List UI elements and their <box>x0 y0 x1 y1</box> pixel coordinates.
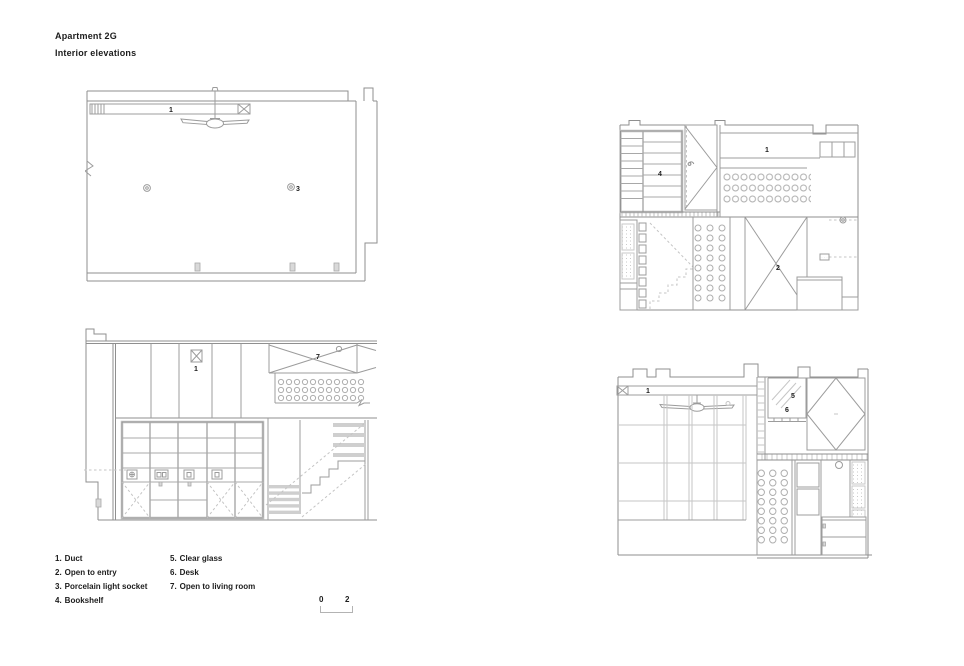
legend-num: 6. <box>170 568 177 577</box>
callout-bookshelf: 4 <box>658 171 662 178</box>
door-knob-icon <box>836 462 843 469</box>
legend-num: 7. <box>170 582 177 591</box>
scale-end: 2 <box>345 595 349 604</box>
perforated-panel <box>756 469 791 544</box>
drawing-sheet: Apartment 2G Interior elevations 1 3 <box>0 0 964 666</box>
legend-column-1: 1.Duct 2.Open to entry 3.Porcelain light… <box>55 552 147 608</box>
floor-outlets <box>195 263 339 271</box>
door-handle-icon <box>688 163 691 166</box>
legend-label: Porcelain light socket <box>65 582 148 591</box>
perforated-panel <box>275 373 370 406</box>
upper-floor-hatch <box>620 212 720 217</box>
ceiling-fan-icon <box>181 88 249 129</box>
legend-num: 4. <box>55 596 62 605</box>
callout-open-to-living-room: 7 <box>316 354 320 361</box>
scale-bracket-icon <box>320 606 353 613</box>
callout-light-socket: 3 <box>296 186 300 193</box>
callout-duct: 1 <box>765 147 769 154</box>
low-cabinet <box>822 517 866 555</box>
elevation-top-right: 4 1 <box>617 117 867 317</box>
room-outline <box>85 88 377 281</box>
duct: 1 <box>617 386 757 395</box>
legend-item-porcelain-light-socket: 3.Porcelain light socket <box>55 580 147 594</box>
duct: 1 <box>90 104 250 114</box>
legend-item-duct: 1.Duct <box>55 552 147 566</box>
desk-and-glass-panel: 5 6 <box>768 378 806 422</box>
page-subtitle: Interior elevations <box>55 48 136 58</box>
floor-band <box>757 454 868 460</box>
lower-right-section <box>756 460 866 555</box>
legend-num: 5. <box>170 554 177 563</box>
legend-label: Bookshelf <box>65 596 104 605</box>
elevation-bottom-right: 1 5 6 <box>616 362 874 564</box>
duct: 1 <box>191 350 202 373</box>
elevation-bottom-left: 1 7 <box>84 322 379 534</box>
legend-num: 1. <box>55 554 62 563</box>
legend-item-bookshelf: 4.Bookshelf <box>55 594 147 608</box>
legend-label: Desk <box>180 568 199 577</box>
legend-column-2: 5.Clear glass 6.Desk 7.Open to living ro… <box>170 552 255 594</box>
legend-label: Open to entry <box>65 568 117 577</box>
closet-door <box>685 125 720 217</box>
callout-duct: 1 <box>646 388 650 395</box>
perforated-panel-lower <box>694 224 730 302</box>
wall-section-ladder <box>757 377 765 460</box>
callout-desk: 6 <box>785 407 789 414</box>
diamond-panel <box>807 378 865 450</box>
callout-open-to-entry: 2 <box>776 265 780 272</box>
callout-duct: 1 <box>169 107 173 114</box>
low-cabinet-right <box>797 277 858 310</box>
legend-num: 3. <box>55 582 62 591</box>
legend-label: Duct <box>65 554 83 563</box>
scale-start: 0 <box>319 595 323 604</box>
callout-duct: 1 <box>194 366 198 373</box>
ceiling-fan-icon <box>660 395 734 411</box>
staircase <box>266 418 368 520</box>
light-socket-and-switch <box>820 217 858 260</box>
legend-item-open-to-entry: 2.Open to entry <box>55 566 147 580</box>
open-to-living-room-panel: 7 <box>269 344 376 374</box>
lower-cabinets-left <box>620 217 730 310</box>
break-line-icon <box>85 161 93 176</box>
perforated-panel-upper <box>723 172 811 203</box>
legend-label: Open to living room <box>180 582 256 591</box>
legend-item-desk: 6.Desk <box>170 566 255 580</box>
callout-clear-glass: 5 <box>791 393 795 400</box>
elevation-top-left: 1 3 <box>85 85 385 290</box>
page-title: Apartment 2G <box>55 31 117 41</box>
duct: 1 <box>720 133 858 168</box>
legend-num: 2. <box>55 568 62 577</box>
bookshelf <box>122 422 263 518</box>
wall-outlet <box>96 499 101 507</box>
legend-label: Clear glass <box>180 554 223 563</box>
bookshelf: 4 <box>621 131 683 212</box>
porcelain-light-sockets: 3 <box>144 184 300 193</box>
legend-item-clear-glass: 5.Clear glass <box>170 552 255 566</box>
legend-item-open-to-living-room: 7.Open to living room <box>170 580 255 594</box>
window-grid <box>618 395 746 520</box>
